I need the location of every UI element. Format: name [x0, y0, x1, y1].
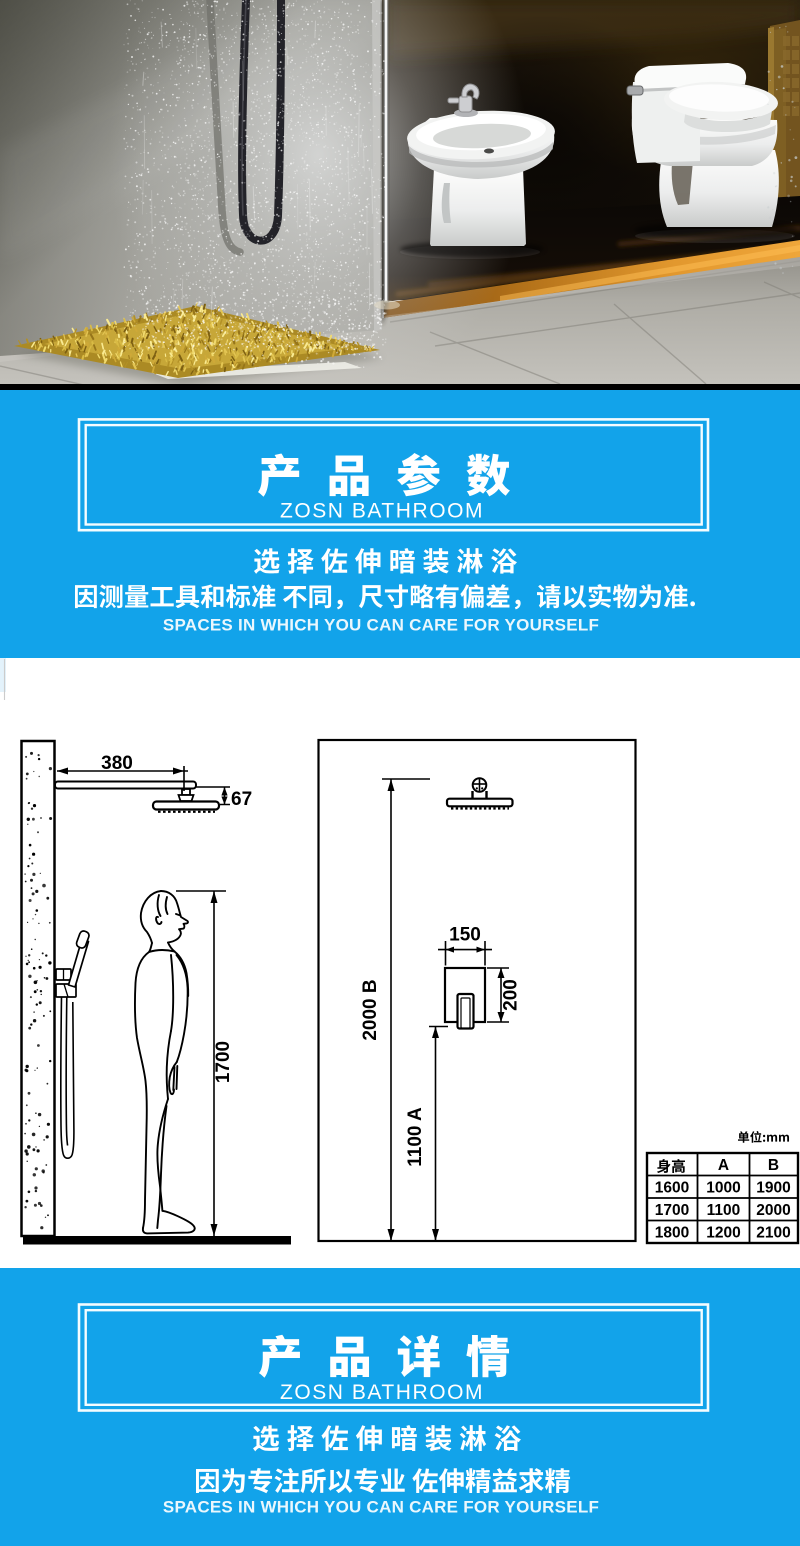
- svg-text:2000 B: 2000 B: [360, 979, 381, 1040]
- svg-text:200: 200: [501, 979, 522, 1011]
- svg-text:2100: 2100: [756, 1225, 790, 1242]
- svg-text:1700: 1700: [655, 1202, 689, 1219]
- svg-text:B: B: [768, 1157, 779, 1174]
- svg-text:1800: 1800: [655, 1225, 689, 1242]
- svg-text:1000: 1000: [706, 1180, 740, 1197]
- svg-text:ZOSN BATHROOM: ZOSN BATHROOM: [280, 500, 484, 523]
- svg-text:67: 67: [231, 789, 252, 810]
- svg-text:SPACES IN WHICH YOU CAN CARE F: SPACES IN WHICH YOU CAN CARE FOR YOURSEL…: [163, 616, 599, 635]
- svg-text:1700: 1700: [213, 1041, 234, 1083]
- svg-text:SPACES IN WHICH YOU CAN CARE F: SPACES IN WHICH YOU CAN CARE FOR YOURSEL…: [163, 1498, 599, 1517]
- svg-text:1200: 1200: [706, 1225, 740, 1242]
- svg-text:A: A: [718, 1157, 729, 1174]
- svg-text:ZOSN BATHROOM: ZOSN BATHROOM: [280, 1381, 484, 1404]
- svg-text:2000: 2000: [756, 1202, 790, 1219]
- svg-text:150: 150: [449, 925, 481, 946]
- svg-text:1900: 1900: [756, 1180, 790, 1197]
- svg-text:1600: 1600: [655, 1180, 689, 1197]
- svg-text:1100 A: 1100 A: [405, 1107, 426, 1167]
- svg-text:380: 380: [101, 753, 133, 774]
- svg-text:1100: 1100: [707, 1202, 741, 1219]
